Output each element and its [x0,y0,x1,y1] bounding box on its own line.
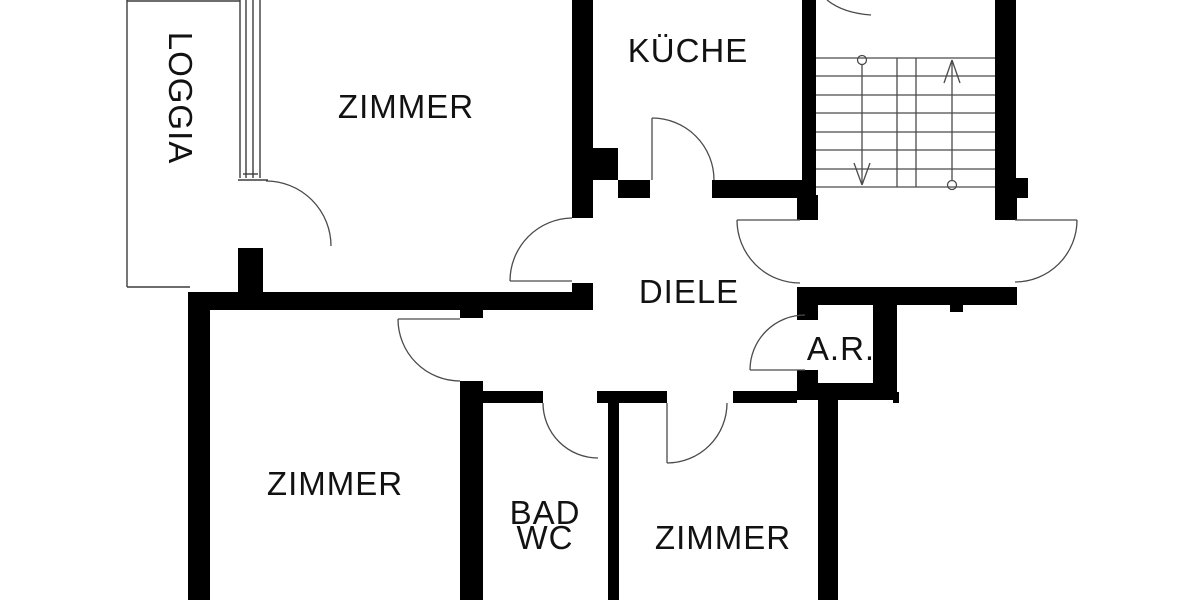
door-swing-arc [510,218,572,281]
wall-segment [188,292,593,310]
room-label-loggia: LOGGIA [162,32,199,165]
door-swing-arc [1015,220,1077,282]
arrow-head [952,60,960,83]
door-swing-arc [667,403,727,463]
wall-segment [712,180,802,198]
wall-segment [592,148,618,180]
wall-segment [818,400,838,600]
wall-segment [950,305,963,312]
wall-segment [618,180,650,198]
wall-segment [238,248,263,292]
ar-door-arc-icon [750,315,805,370]
window-icon [238,0,268,180]
room-label-zimmer-bottom-left: ZIMMER [267,465,403,502]
wall-segment [608,403,619,600]
stairs-up-arrow-icon [944,60,960,190]
door-swing-arc [750,315,805,370]
wall-segment [797,370,818,383]
room-label-zimmer-bottom-right: ZIMMER [655,519,791,556]
wall-segment [1015,178,1028,198]
kueche-door-arc-icon [652,118,714,180]
wall-segment [802,0,816,196]
door-swing-arc [737,220,800,283]
door-swing-arc [266,181,331,246]
arrow-head [944,60,952,83]
room-label-kueche: KÜCHE [628,32,749,69]
door-swing-arc [398,319,460,381]
floorplan-page: LOGGIA ZIMMER KÜCHE DIELE A.R. ZIMMER BA… [0,0,1200,600]
wall-segment [188,292,210,600]
door-swing-arc [652,118,714,180]
room-label-zimmer-top-left: ZIMMER [338,88,474,125]
wall-segment [873,305,897,397]
loggia-door-arc-icon [266,181,331,246]
bad-door-arc-icon [543,403,598,458]
door-swing-arc [543,403,598,458]
wall-segment [597,391,667,403]
wall-segment [733,391,797,403]
wall-segment [995,0,1016,196]
arrow-start-circle [948,181,957,190]
wall-segment [797,305,818,320]
wall-segment [460,292,483,318]
zimmer-top-door-arc-icon [510,218,572,281]
zimmer-bottom-left-door-arc-icon [398,319,460,381]
arrow-start-circle [858,56,867,65]
floorplan-canvas: LOGGIA ZIMMER KÜCHE DIELE A.R. ZIMMER BA… [0,0,1200,600]
wall-segment [995,195,1017,220]
entry-door-right-arc-icon [1015,220,1077,282]
wall-segment [797,195,818,220]
wall-segment [797,287,1017,305]
room-label-abstellraum: A.R. [807,330,875,367]
wall-segment [572,0,593,218]
arrow-head [862,163,870,185]
entry-door-left-arc-icon [737,220,800,283]
wall-segment [460,381,483,600]
room-label-wc: WC [517,519,574,556]
walls [188,0,1028,600]
staircase-icon [816,0,995,190]
wall-segment [483,391,543,403]
zimmer-bottom-right-door-arc-icon [667,403,727,463]
room-label-diele: DIELE [639,273,739,310]
stairhall-door-arc-icon [827,0,871,15]
stairs-down-arrow-icon [854,56,870,186]
arrow-head [854,163,862,185]
